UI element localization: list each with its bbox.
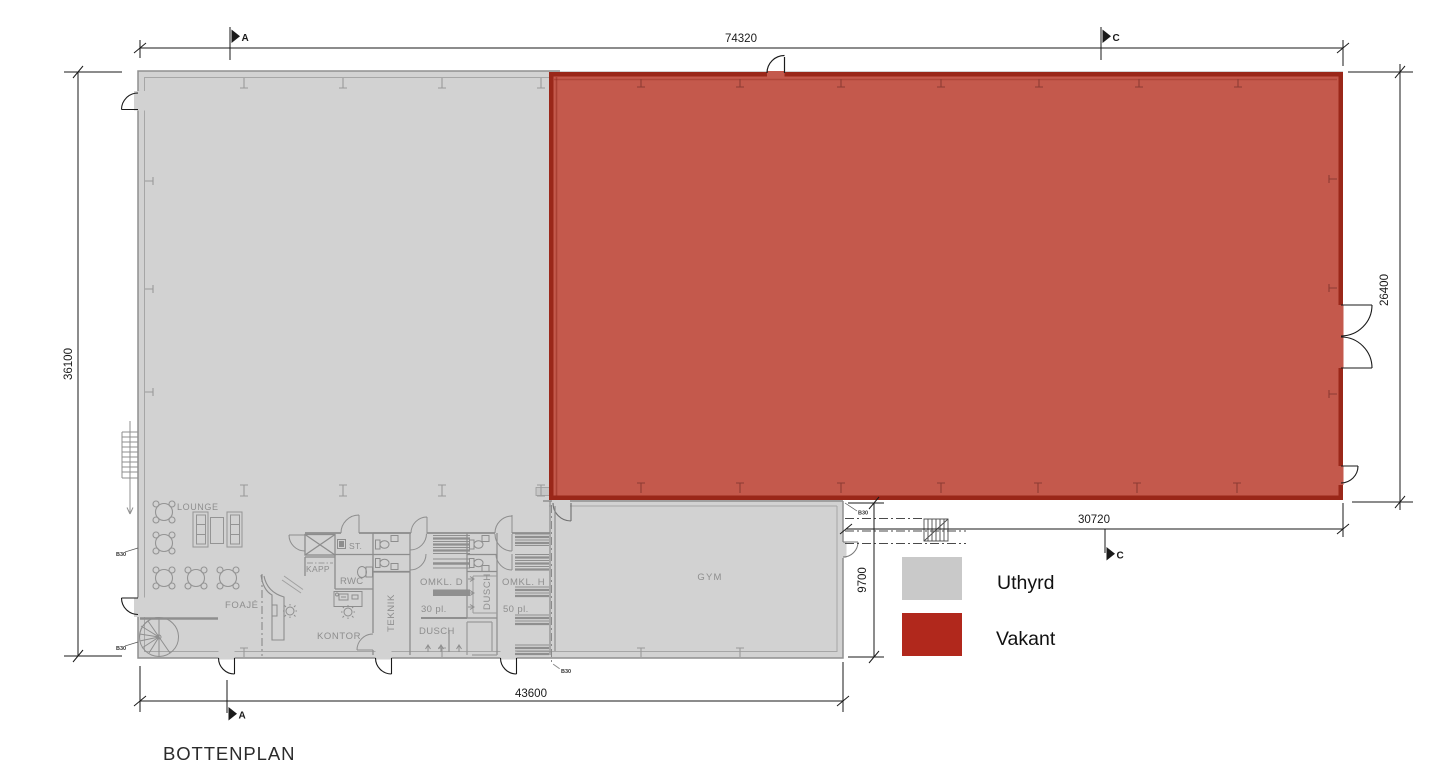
svg-text:C: C	[1113, 33, 1120, 44]
svg-text:Uthyrd: Uthyrd	[997, 572, 1054, 594]
svg-text:26400: 26400	[1379, 274, 1391, 306]
svg-text:FOAJÉ: FOAJÉ	[225, 600, 259, 611]
svg-text:Vakant: Vakant	[996, 628, 1056, 650]
svg-text:30720: 30720	[1078, 514, 1110, 526]
svg-text:43600: 43600	[515, 688, 547, 700]
svg-text:74320: 74320	[725, 33, 757, 45]
svg-text:OMKL. H: OMKL. H	[502, 577, 545, 588]
svg-text:OMKL. D: OMKL. D	[420, 577, 463, 588]
svg-text:B30: B30	[116, 552, 126, 558]
svg-text:RWC: RWC	[340, 576, 363, 587]
svg-text:GYM: GYM	[697, 572, 722, 583]
svg-text:A: A	[242, 33, 249, 44]
svg-text:36100: 36100	[63, 348, 75, 380]
svg-text:LOUNGE: LOUNGE	[177, 502, 219, 512]
svg-text:50 pl.: 50 pl.	[503, 604, 529, 615]
svg-text:30 pl.: 30 pl.	[421, 604, 447, 615]
svg-text:KONTOR: KONTOR	[317, 631, 361, 642]
svg-text:C: C	[1117, 551, 1124, 562]
svg-text:B30: B30	[858, 511, 868, 517]
svg-text:BOTTENPLAN: BOTTENPLAN	[163, 743, 295, 764]
svg-text:9700: 9700	[857, 567, 869, 593]
svg-text:B30: B30	[561, 669, 571, 675]
svg-text:ST.: ST.	[349, 541, 362, 551]
svg-text:B30: B30	[116, 646, 126, 652]
svg-text:KAPP: KAPP	[306, 564, 330, 574]
svg-text:TEKNIK: TEKNIK	[386, 594, 397, 632]
svg-text:A: A	[239, 711, 246, 722]
svg-text:DUSCH: DUSCH	[482, 573, 493, 610]
